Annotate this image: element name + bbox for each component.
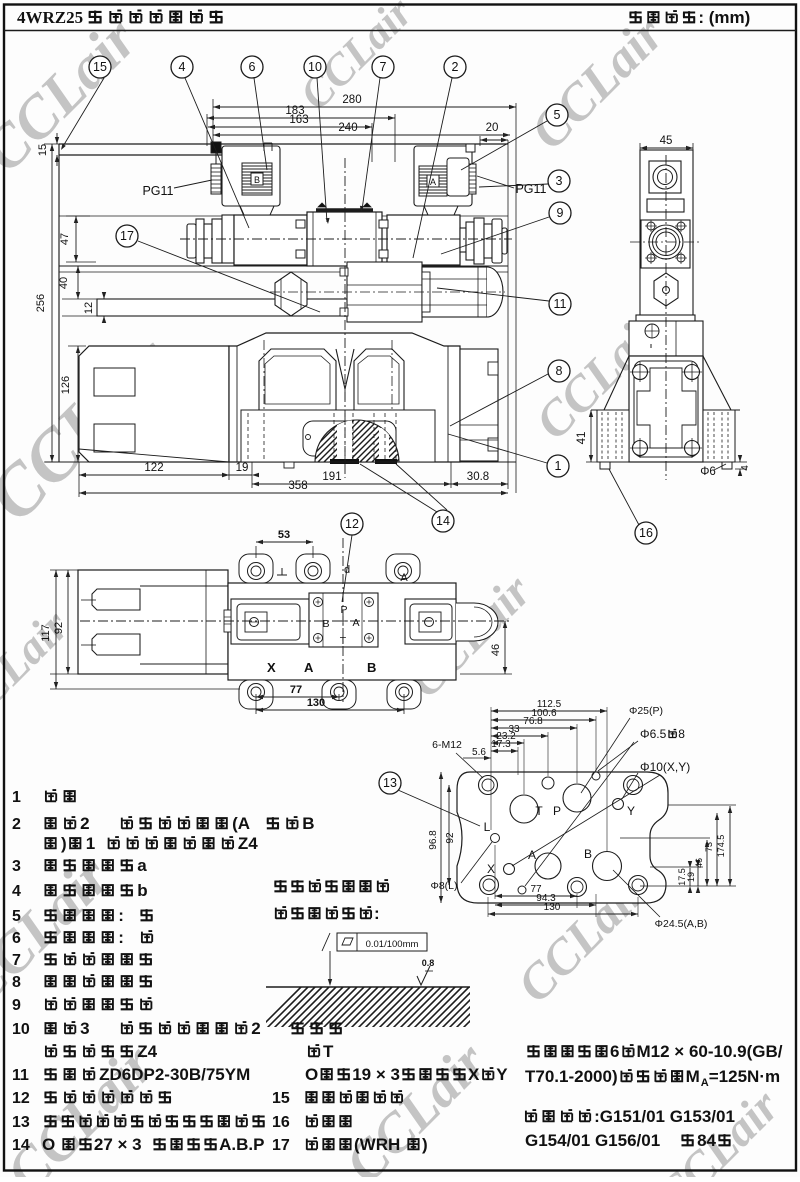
svg-text:Z4: Z4 <box>137 1042 157 1061</box>
svg-text:240: 240 <box>338 122 357 134</box>
svg-text:4: 4 <box>740 465 751 471</box>
svg-text:0.8: 0.8 <box>422 958 435 968</box>
svg-text:6: 6 <box>610 1042 619 1061</box>
svg-text:16: 16 <box>272 1114 290 1131</box>
svg-text:17.3: 17.3 <box>491 739 511 750</box>
svg-text:A: A <box>430 177 436 187</box>
svg-text:11: 11 <box>12 1067 29 1084</box>
svg-text:: (mm): : (mm) <box>698 8 750 27</box>
svg-text:4WRZ25: 4WRZ25 <box>17 8 83 27</box>
svg-text:T: T <box>535 804 543 818</box>
svg-text:2: 2 <box>452 60 459 74</box>
svg-text:b: b <box>137 881 147 900</box>
svg-text:3: 3 <box>80 1019 89 1038</box>
svg-text:15: 15 <box>37 144 49 156</box>
svg-text:B: B <box>584 847 592 861</box>
svg-text:B: B <box>367 660 376 675</box>
svg-text:): ) <box>422 1135 428 1154</box>
svg-text:3: 3 <box>12 858 21 875</box>
svg-text:M12 × 60-10.9(GB/: M12 × 60-10.9(GB/ <box>637 1042 783 1061</box>
svg-text:9: 9 <box>557 206 564 220</box>
svg-text:Φ24.5(A,B): Φ24.5(A,B) <box>655 918 708 930</box>
svg-text:A: A <box>304 660 314 675</box>
svg-text:7: 7 <box>12 952 21 969</box>
svg-text:T70.1-2000): T70.1-2000) <box>525 1067 618 1086</box>
svg-text:10: 10 <box>12 1021 30 1038</box>
svg-text:126: 126 <box>60 376 72 394</box>
svg-text:=125N·m: =125N·m <box>709 1067 780 1086</box>
svg-text:11: 11 <box>554 297 567 311</box>
svg-text:15: 15 <box>93 60 107 74</box>
svg-text:4: 4 <box>179 60 186 74</box>
svg-text:15: 15 <box>272 1090 290 1107</box>
svg-text:12: 12 <box>12 1090 30 1107</box>
svg-text:92: 92 <box>53 622 65 634</box>
svg-text:130: 130 <box>307 697 325 709</box>
svg-text:Y: Y <box>496 1065 508 1084</box>
svg-text:(WRH: (WRH <box>354 1135 400 1154</box>
svg-text:(A: (A <box>232 814 250 833</box>
svg-text:73: 73 <box>704 842 714 852</box>
svg-text:46: 46 <box>694 858 704 868</box>
svg-text:41: 41 <box>576 432 588 445</box>
svg-text:17: 17 <box>120 229 134 243</box>
svg-text:2: 2 <box>80 814 89 833</box>
svg-text:M: M <box>686 1067 700 1086</box>
svg-text:B: B <box>254 175 260 185</box>
svg-text:92: 92 <box>445 832 456 844</box>
svg-text:A: A <box>352 617 359 629</box>
svg-text:3: 3 <box>556 174 563 188</box>
svg-text:A.B.P: A.B.P <box>219 1135 264 1154</box>
svg-text:358: 358 <box>288 480 307 492</box>
svg-text:45: 45 <box>660 135 673 147</box>
svg-text:40: 40 <box>58 277 70 289</box>
svg-text:2: 2 <box>12 816 21 833</box>
svg-text:13: 13 <box>383 776 397 790</box>
svg-text:X: X <box>487 862 495 876</box>
svg-text:Y: Y <box>627 804 635 818</box>
svg-text:1: 1 <box>555 459 562 473</box>
svg-text:2: 2 <box>251 1019 260 1038</box>
svg-text:47: 47 <box>59 233 71 245</box>
svg-text:76.8: 76.8 <box>523 716 543 727</box>
svg-text:14: 14 <box>12 1137 30 1154</box>
svg-text:46: 46 <box>490 644 502 656</box>
svg-text:P: P <box>340 604 347 616</box>
svg-text:7: 7 <box>380 60 387 74</box>
svg-text:1: 1 <box>12 789 21 806</box>
svg-text:5: 5 <box>12 908 21 925</box>
svg-text:280: 280 <box>342 94 361 106</box>
svg-text:5.6: 5.6 <box>472 747 486 758</box>
svg-text:X: X <box>468 1065 480 1084</box>
svg-text:4: 4 <box>12 883 21 900</box>
svg-text:117: 117 <box>40 624 52 642</box>
svg-text:84: 84 <box>697 1131 716 1150</box>
svg-text:Φ25(P): Φ25(P) <box>629 705 663 717</box>
svg-text:17: 17 <box>272 1137 290 1154</box>
svg-text:191: 191 <box>322 471 341 483</box>
svg-text:14: 14 <box>436 514 450 528</box>
svg-text:6-M12: 6-M12 <box>432 739 462 751</box>
svg-text:130: 130 <box>544 902 561 913</box>
svg-text:X: X <box>267 660 276 675</box>
svg-text:1: 1 <box>86 834 95 853</box>
svg-text:A: A <box>701 1077 709 1089</box>
svg-text:B: B <box>302 814 314 833</box>
svg-text:96.8: 96.8 <box>428 830 439 850</box>
svg-text::: : <box>118 906 124 925</box>
svg-text:Z4: Z4 <box>238 834 258 853</box>
svg-text:G154/01 G156/01: G154/01 G156/01 <box>525 1131 660 1150</box>
svg-text:B: B <box>322 618 329 630</box>
svg-text:12: 12 <box>83 302 95 314</box>
svg-text:T: T <box>323 1042 334 1061</box>
svg-text:P: P <box>553 804 561 818</box>
svg-text:8: 8 <box>12 974 21 991</box>
svg-text:): ) <box>61 834 67 853</box>
svg-text:13: 13 <box>12 1114 30 1131</box>
svg-text:10: 10 <box>308 60 322 74</box>
svg-text:6: 6 <box>249 60 256 74</box>
svg-text:6: 6 <box>12 930 21 947</box>
svg-text:0.01/100mm: 0.01/100mm <box>366 939 419 950</box>
svg-text:Φ6.5: Φ6.5 <box>640 727 667 741</box>
svg-text:Φ6: Φ6 <box>700 466 716 478</box>
svg-text:ZD6DP2-30B/75YM: ZD6DP2-30B/75YM <box>99 1065 250 1084</box>
svg-text:a: a <box>137 856 147 875</box>
svg-text:Φ8(L): Φ8(L) <box>430 880 457 892</box>
svg-text:53: 53 <box>278 529 290 541</box>
svg-text:PG11: PG11 <box>142 184 173 198</box>
svg-text:163: 163 <box>289 114 308 126</box>
svg-text:30.8: 30.8 <box>467 471 489 483</box>
svg-text:8: 8 <box>678 727 685 741</box>
svg-text:5: 5 <box>554 108 561 122</box>
svg-text:27 × 3: 27 × 3 <box>94 1135 142 1154</box>
svg-text:19: 19 <box>236 462 249 474</box>
svg-text:Φ10(X,Y): Φ10(X,Y) <box>640 760 690 774</box>
svg-text:O: O <box>42 1135 55 1154</box>
svg-text:A: A <box>400 572 408 584</box>
svg-text::: : <box>374 904 380 923</box>
svg-text:PG11: PG11 <box>515 182 546 196</box>
svg-text:19 × 3: 19 × 3 <box>352 1065 400 1084</box>
svg-text:O: O <box>305 1065 318 1084</box>
svg-text:8: 8 <box>556 364 563 378</box>
svg-text::G151/01 G153/01: :G151/01 G153/01 <box>594 1107 735 1126</box>
svg-text:256: 256 <box>35 294 47 312</box>
svg-text:77: 77 <box>290 684 302 696</box>
svg-text:19: 19 <box>686 872 696 882</box>
svg-text:9: 9 <box>12 997 21 1014</box>
svg-text:L: L <box>484 820 491 834</box>
svg-text:122: 122 <box>144 462 163 474</box>
svg-text:20: 20 <box>486 122 499 134</box>
svg-text::: : <box>118 928 124 947</box>
svg-text:174.5: 174.5 <box>716 835 726 858</box>
svg-text:16: 16 <box>639 526 653 540</box>
svg-text:12: 12 <box>345 517 359 531</box>
